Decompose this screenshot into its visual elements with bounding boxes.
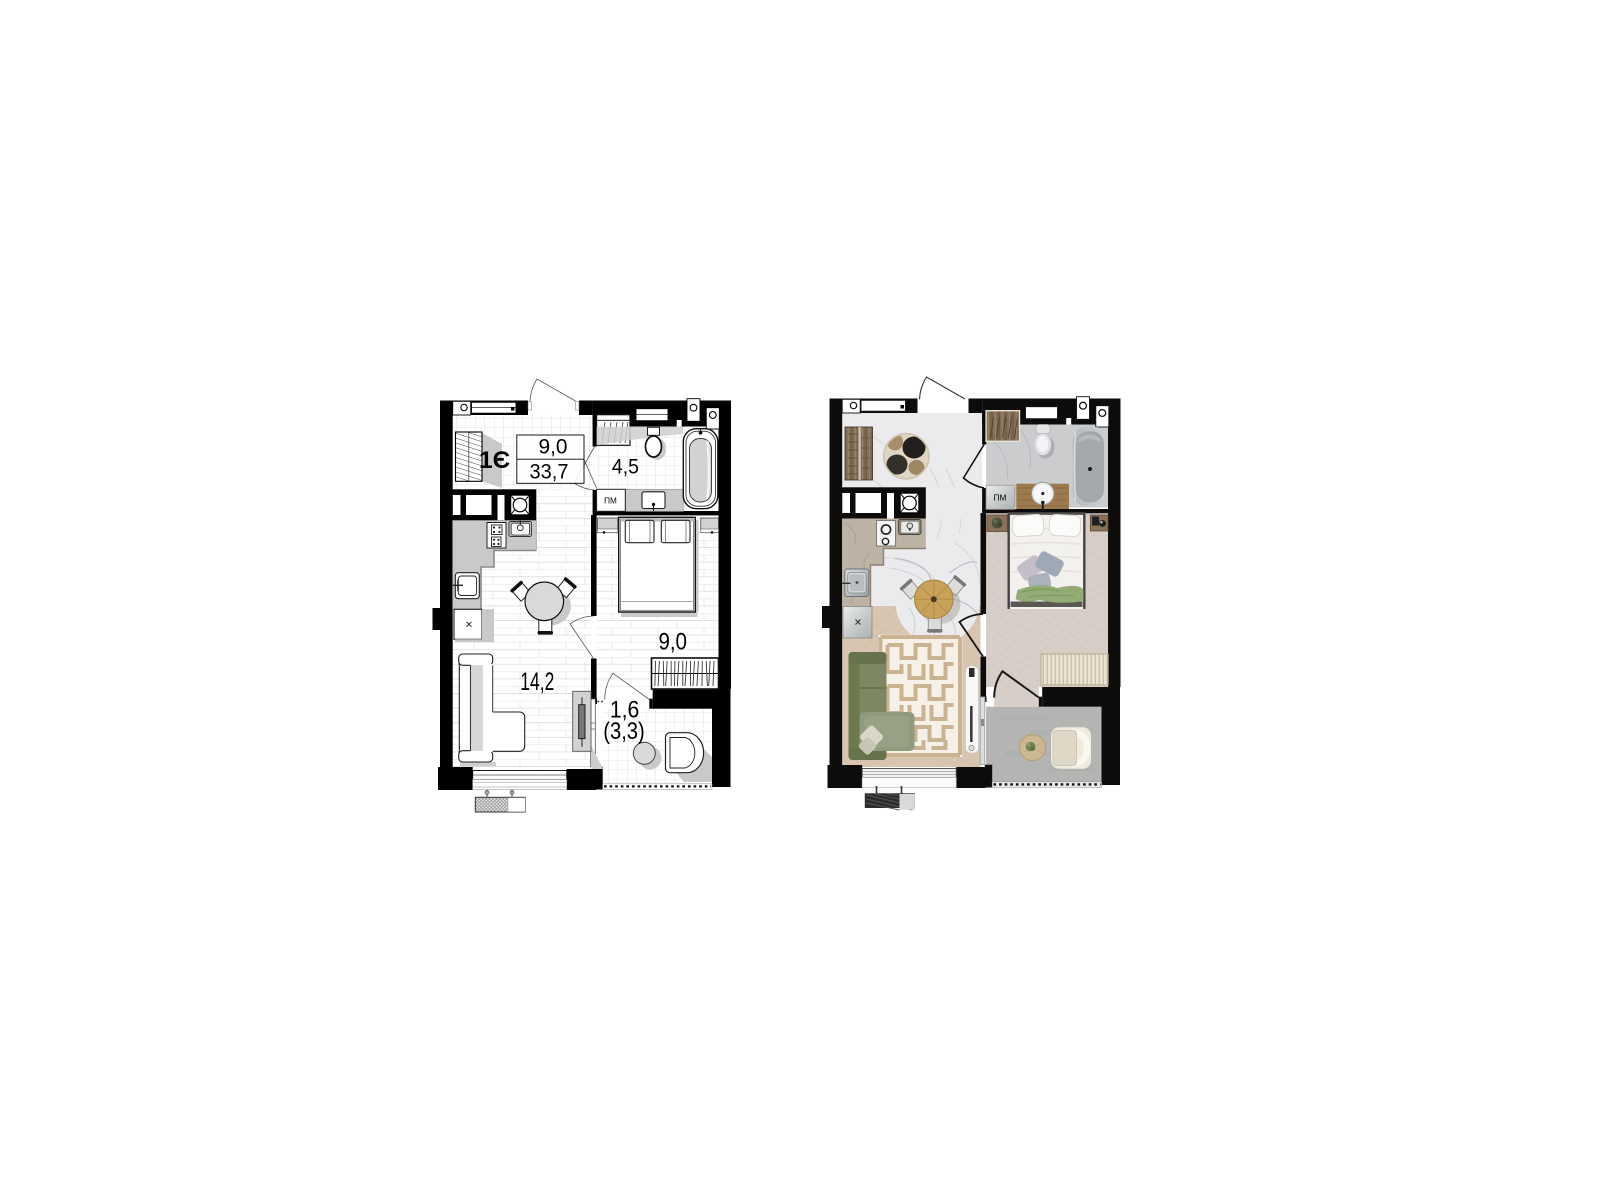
svg-text:9,0: 9,0 <box>658 629 687 656</box>
svg-text:ПМ: ПМ <box>994 494 1007 503</box>
svg-text:14,2: 14,2 <box>520 668 554 696</box>
svg-text:33,7: 33,7 <box>530 460 569 484</box>
svg-text:(3,3): (3,3) <box>603 718 645 745</box>
svg-text:1Є: 1Є <box>479 447 510 474</box>
svg-text:9,0: 9,0 <box>539 435 568 459</box>
svg-text:ПМ: ПМ <box>604 497 617 506</box>
svg-text:4,5: 4,5 <box>612 455 639 479</box>
